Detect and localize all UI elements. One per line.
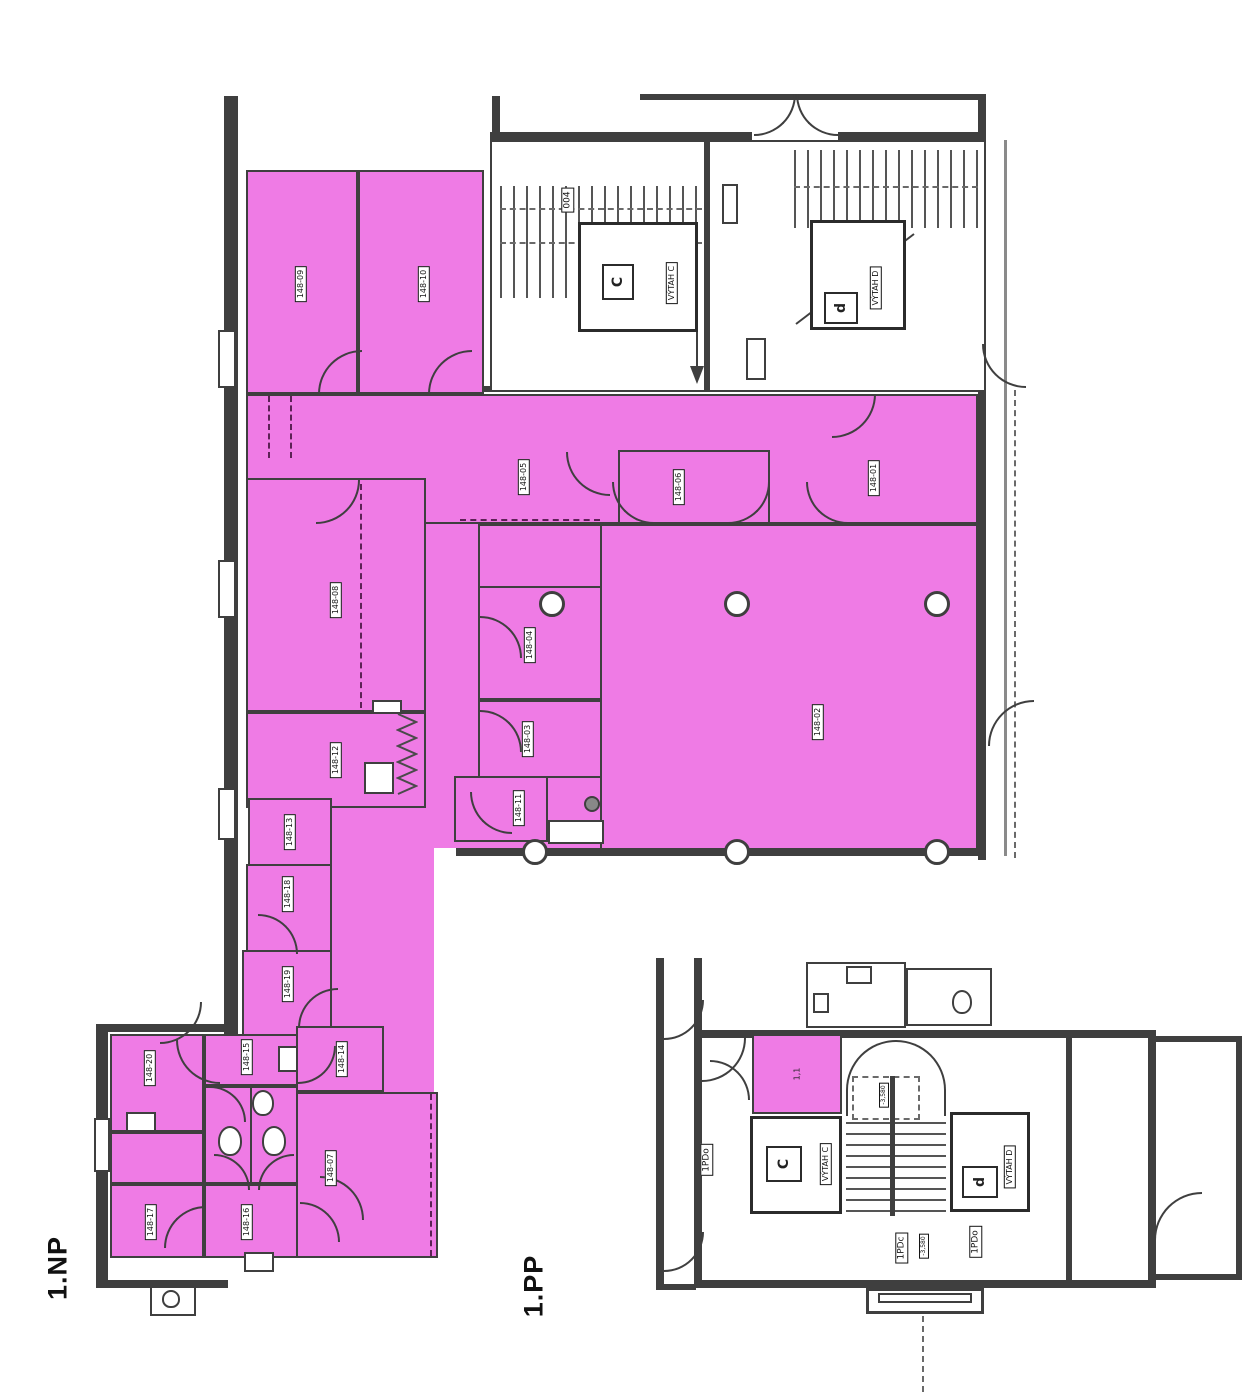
door-arc-icon bbox=[982, 344, 1026, 388]
pp-1pdo-left-label: 1PDo bbox=[700, 1144, 713, 1176]
window-marker bbox=[218, 330, 236, 388]
pp-level-marker-top: -3,580 bbox=[879, 1082, 889, 1107]
np-walkway-a bbox=[426, 520, 486, 812]
dash-partition bbox=[290, 396, 292, 458]
room-148-03-label: 148-03 bbox=[522, 721, 534, 757]
dash-partition bbox=[268, 396, 270, 458]
room-148-07-dash-partition bbox=[430, 1094, 432, 1256]
room-148-15-label: 148-15 bbox=[241, 1039, 253, 1075]
room-148-19-label: 148-19 bbox=[282, 966, 294, 1002]
dash-partition bbox=[360, 484, 362, 708]
elevator-d-label: VÝTAH D bbox=[870, 267, 882, 310]
pp-inner-wall bbox=[1066, 1034, 1072, 1280]
pp-right-stub-bottom bbox=[1156, 1274, 1242, 1280]
door-arc-icon bbox=[754, 94, 796, 136]
toilet-icon bbox=[252, 1090, 274, 1116]
pp-right-wall bbox=[1148, 1030, 1156, 1288]
column-icon bbox=[924, 591, 950, 617]
wc-cell-c bbox=[110, 1132, 204, 1184]
level-marker-box bbox=[746, 338, 766, 380]
sink-icon bbox=[126, 1112, 156, 1132]
np-walkway-d bbox=[384, 1026, 434, 1096]
pp-1pdc-label: 1PDc bbox=[895, 1232, 908, 1263]
door-arc-icon bbox=[988, 700, 1034, 746]
entry-mat-icon bbox=[548, 820, 604, 844]
pp-protrusion-inner bbox=[878, 1293, 972, 1303]
room-148-16-label: 148-16 bbox=[241, 1204, 253, 1240]
sink-icon bbox=[244, 1252, 274, 1272]
np-subroom bbox=[478, 524, 602, 588]
elevator-c-car: C bbox=[602, 264, 634, 300]
toilet-icon bbox=[218, 1126, 242, 1156]
stair-treads bbox=[794, 150, 978, 228]
plan-1np-title: 1.NP bbox=[43, 1236, 74, 1300]
room-148-14-label: 148-14 bbox=[336, 1041, 348, 1077]
pp-elevator-d-car: d bbox=[962, 1166, 998, 1198]
room-148-06-label: 148-06 bbox=[673, 469, 685, 505]
room-148-04-label: 148-04 bbox=[524, 627, 536, 663]
room-148-01-label: 148-01 bbox=[868, 460, 880, 496]
room-148-12-label: 148-12 bbox=[330, 742, 342, 778]
vent-icon bbox=[846, 966, 872, 984]
drain-icon bbox=[584, 796, 600, 812]
room-148-20-label: 148-20 bbox=[144, 1050, 156, 1086]
toilet-icon bbox=[952, 990, 972, 1014]
room-148-10-label: 148-10 bbox=[418, 266, 430, 302]
room-148-11-label: 148-11 bbox=[513, 790, 525, 826]
pp-level-marker-bottom: -3,580 bbox=[919, 1233, 929, 1258]
room-148-17-label: 148-17 bbox=[145, 1204, 157, 1240]
np-stair-top-wall-b bbox=[838, 132, 986, 140]
room-148-08-label: 148-08 bbox=[330, 582, 342, 618]
sink-icon bbox=[813, 993, 829, 1013]
sink-icon bbox=[278, 1046, 298, 1072]
pp-elevator-c-letter: C bbox=[776, 1159, 792, 1169]
pp-left-outer-wall bbox=[656, 958, 664, 1288]
elevator-d-letter: d bbox=[833, 303, 849, 313]
toilet-icon bbox=[162, 1290, 180, 1308]
np-right-dash-line bbox=[1014, 390, 1016, 858]
np-walkway-b bbox=[330, 800, 434, 1040]
room-004-label: 004 bbox=[561, 187, 574, 212]
room-148-05-label: 148-05 bbox=[518, 459, 530, 495]
room-148-09-label: 148-09 bbox=[295, 266, 307, 302]
pp-elevator-d-letter: d bbox=[972, 1177, 988, 1187]
column-icon bbox=[924, 839, 950, 865]
column-icon bbox=[522, 839, 548, 865]
stair-treads bbox=[846, 1118, 946, 1212]
pp-1pdo-bottom-label: 1PDo bbox=[969, 1226, 982, 1258]
column-icon bbox=[539, 591, 565, 617]
hatch-zigzag-icon bbox=[396, 712, 418, 796]
pp-elevator-c-car: C bbox=[766, 1146, 802, 1182]
pp-right-edge-wall bbox=[1236, 1036, 1242, 1280]
room-148-07-label: 148-07 bbox=[325, 1150, 337, 1186]
appliance-icon bbox=[364, 762, 394, 794]
stair-dash-line bbox=[794, 186, 978, 188]
door-arc-icon bbox=[710, 1060, 750, 1100]
column-icon bbox=[724, 839, 750, 865]
door-arc-icon bbox=[796, 94, 838, 136]
elevator-c-letter: C bbox=[610, 277, 626, 287]
pp-bottomleft-stub bbox=[656, 1284, 696, 1290]
pp-service-room-b bbox=[906, 968, 992, 1026]
stair-dash-line bbox=[500, 208, 702, 210]
pp-room-1-1-label: 1,1 bbox=[793, 1068, 802, 1081]
room-148-02 bbox=[600, 524, 978, 850]
window-marker bbox=[218, 560, 236, 618]
level-marker-box bbox=[722, 184, 738, 224]
room-148-18-label: 148-18 bbox=[282, 876, 294, 912]
room-148-13-label: 148-13 bbox=[284, 814, 296, 850]
pp-elevator-c-label: VÝTAH C bbox=[820, 1143, 832, 1185]
elevator-c-shaft bbox=[578, 222, 698, 332]
pp-elevator-d-label: VÝTAH D bbox=[1004, 1146, 1016, 1189]
pp-axis-dash-line bbox=[922, 1316, 924, 1392]
room-148-02-label: 148-02 bbox=[812, 704, 824, 740]
stair-center-rail bbox=[890, 1076, 895, 1216]
elevator-d-car: d bbox=[824, 292, 858, 324]
toilet-icon bbox=[262, 1126, 286, 1156]
elevator-c-label: VÝTAH C bbox=[666, 262, 678, 304]
door-arc-icon bbox=[1154, 1192, 1202, 1240]
floor-plan-canvas: 1.NP 148-09 148-10 148-05 148-01 148-06 bbox=[0, 0, 1242, 1396]
np-stair-top-wall-a bbox=[490, 132, 752, 140]
pp-right-stub-top bbox=[1156, 1036, 1242, 1042]
np-right-outer-line bbox=[1004, 140, 1007, 856]
pp-bottom-wall bbox=[694, 1280, 1156, 1288]
plan-1pp-title: 1.PP bbox=[519, 1255, 550, 1318]
column-icon bbox=[724, 591, 750, 617]
window-marker bbox=[218, 788, 236, 840]
dash-partition bbox=[460, 519, 600, 521]
window-marker bbox=[94, 1118, 110, 1172]
